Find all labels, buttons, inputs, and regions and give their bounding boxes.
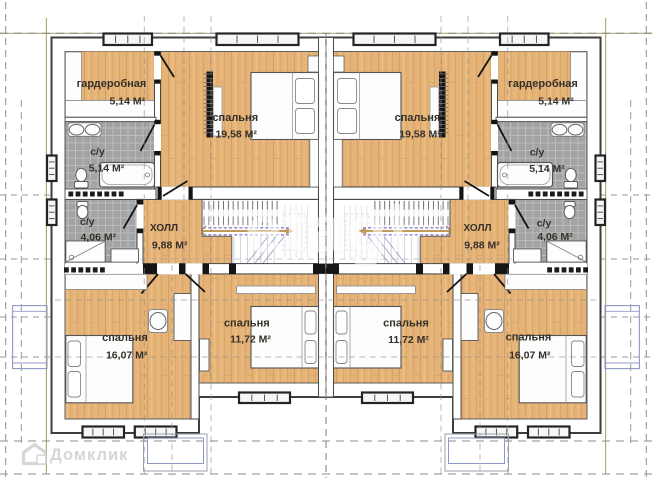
svg-text:19,58 М²: 19,58 М²: [399, 129, 441, 141]
svg-text:5,14 М²: 5,14 М²: [529, 163, 565, 175]
svg-text:ХОЛЛ: ХОЛЛ: [150, 223, 178, 234]
svg-text:спальня: спальня: [395, 112, 441, 124]
svg-text:с/у: с/у: [530, 147, 545, 159]
svg-text:19,58 М²: 19,58 М²: [215, 129, 257, 141]
svg-text:ХОЛЛ: ХОЛЛ: [464, 223, 492, 234]
svg-text:etagi: etagi: [245, 192, 409, 266]
svg-text:с/у: с/у: [537, 218, 552, 230]
svg-text:спальня: спальня: [102, 332, 148, 344]
svg-text:с/у: с/у: [80, 216, 95, 228]
svg-text:11,72 М²: 11,72 М²: [388, 334, 429, 346]
svg-text:5,14 М²: 5,14 М²: [89, 163, 125, 175]
svg-text:спальня: спальня: [506, 332, 552, 344]
svg-text:гардеробная: гардеробная: [77, 78, 147, 90]
svg-text:спальня: спальня: [212, 112, 258, 124]
svg-text:4,06 М²: 4,06 М²: [537, 231, 573, 243]
svg-text:9,88 М²: 9,88 М²: [464, 240, 500, 252]
svg-text:спальня: спальня: [224, 318, 270, 330]
svg-text:16,07 М²: 16,07 М²: [509, 350, 551, 362]
svg-text:5,14 М²: 5,14 М²: [538, 96, 574, 108]
svg-text:11,72 М²: 11,72 М²: [230, 334, 271, 346]
svg-text:9,88 М²: 9,88 М²: [152, 240, 188, 252]
svg-text:спальня: спальня: [383, 318, 429, 330]
svg-text:с/у: с/у: [90, 146, 105, 158]
svg-text:гардеробная: гардеробная: [508, 78, 578, 90]
svg-text:5,14 М²: 5,14 М²: [109, 96, 145, 108]
svg-text:Домклик: Домклик: [50, 446, 128, 464]
svg-text:16,07 М²: 16,07 М²: [106, 350, 148, 362]
svg-text:4,06 М²: 4,06 М²: [80, 232, 116, 244]
